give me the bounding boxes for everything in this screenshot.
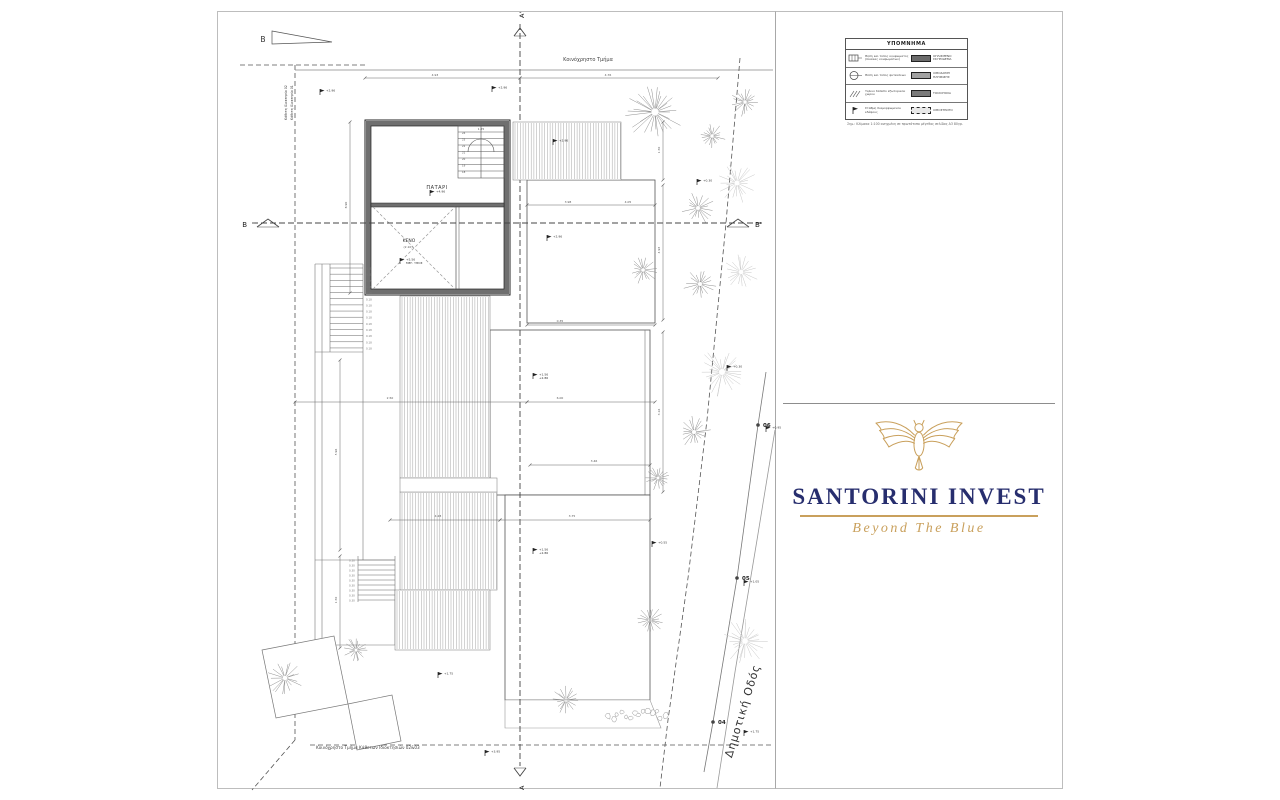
drawing-sheet: B — [0, 0, 1280, 800]
svg-text:4.05: 4.05 — [625, 200, 632, 204]
svg-text:+2.96: +2.96 — [559, 139, 568, 143]
svg-text:04: 04 — [718, 720, 726, 726]
svg-text:(2.10): (2.10) — [403, 245, 412, 249]
svg-text:0.30: 0.30 — [349, 569, 355, 573]
svg-text:+0.30: +0.30 — [733, 365, 742, 369]
svg-text:05: 05 — [742, 576, 750, 582]
vertical-property-01-label: Κάθετη Ιδιοκτησία 01 — [290, 85, 294, 120]
svg-text:+1.75: +1.75 — [444, 672, 453, 676]
legend-symbol-label: Στάθμη διαμορφωμένου εδάφους — [865, 107, 909, 114]
svg-text:1.50: 1.50 — [334, 597, 338, 604]
legend-box: ΥΠΟΜΝΗΜΑ Θέση και τύπος κουφώματος (πίνα… — [845, 38, 968, 120]
site-plan: B — [0, 0, 1280, 800]
svg-text:8.90: 8.90 — [344, 202, 348, 209]
svg-text:0.18: 0.18 — [366, 297, 372, 301]
north-arrow: B — [260, 31, 332, 44]
svg-text:06: 06 — [763, 423, 771, 429]
legend-symbol-label: Θέση και τύπος κουφώματος (πίνακας κουφω… — [865, 55, 909, 62]
svg-text:0.30: 0.30 — [349, 574, 355, 578]
svg-text:+0.30: +0.30 — [703, 179, 712, 183]
svg-text:5.96: 5.96 — [334, 449, 338, 456]
legend-swatch — [911, 90, 931, 97]
svg-text:0.18: 0.18 — [366, 267, 372, 271]
legend-symbol-label: Θέση και τύπος φυτεύσεων — [865, 74, 909, 77]
legend-row: Θέση και τύπος φυτεύσεωνΛΙΘΟΔΟΜΗ ΠΛΗΡΩΣΗ… — [846, 68, 967, 86]
svg-text:+1.75: +1.75 — [750, 730, 759, 734]
window-symbol-icon — [848, 53, 865, 64]
svg-text:0.18: 0.18 — [366, 285, 372, 289]
svg-text:0.18: 0.18 — [366, 328, 372, 332]
svg-text:4.76: 4.76 — [605, 73, 612, 77]
interior-wall — [371, 203, 504, 207]
room-upper — [527, 180, 655, 323]
svg-text:0.18: 0.18 — [366, 273, 372, 277]
company-name: SANTORINI INVEST — [783, 484, 1055, 510]
main-building: ΠΑΤΑΡΙ ΚΕΝΟ — [365, 120, 510, 295]
svg-text:0.18: 0.18 — [366, 316, 372, 320]
legend-title: ΥΠΟΜΝΗΜΑ — [846, 39, 967, 50]
svg-text:0.30: 0.30 — [349, 579, 355, 583]
svg-text:3.16: 3.16 — [657, 409, 661, 416]
svg-text:1.25: 1.25 — [478, 127, 485, 131]
svg-text:+2.96: +2.96 — [553, 235, 562, 239]
legend-swatch-label: ΟΠΛΙΣΜΕΝΟ ΣΚΥΡΟΔΕΜΑ — [933, 55, 965, 62]
legend-swatch-label: ΛΙΘΟΔΟΜΗ ΠΛΗΡΩΣΗΣ — [933, 72, 965, 79]
svg-text:0.30: 0.30 — [349, 599, 355, 603]
svg-text:+2.96: +2.96 — [326, 89, 335, 93]
tilted-terrace-1 — [262, 636, 348, 718]
owl-icon — [871, 414, 967, 478]
legend-symbol-label: Ξύλινο δάπεδο εξωτερικού χώρου — [865, 90, 909, 97]
svg-text:0.30: 0.30 — [349, 559, 355, 563]
svg-text:+3.95: +3.95 — [491, 750, 500, 754]
svg-text:+0.55: +0.55 — [658, 541, 667, 545]
svg-text:20: 20 — [462, 157, 466, 161]
svg-text:0.35: 0.35 — [557, 319, 564, 323]
svg-text:3.98: 3.98 — [565, 200, 572, 204]
section-a-prime-label: A' — [518, 12, 526, 18]
svg-text:0.30: 0.30 — [349, 589, 355, 593]
section-b-prime-label: B' — [755, 221, 762, 229]
svg-text:0.18: 0.18 — [366, 346, 372, 350]
svg-text:22: 22 — [462, 144, 466, 148]
svg-text:0.18: 0.18 — [366, 279, 372, 283]
svg-text:1.50: 1.50 — [657, 147, 661, 154]
svg-text:0.18: 0.18 — [366, 303, 372, 307]
svg-text:24: 24 — [462, 131, 466, 135]
svg-text:+0.95: +0.95 — [772, 426, 781, 430]
svg-text:+1.05: +1.05 — [750, 580, 759, 584]
hatch-symbol-icon — [848, 88, 865, 99]
circle-symbol-icon — [848, 70, 865, 81]
svg-text:4.93: 4.93 — [432, 73, 439, 77]
section-a-label: A — [518, 785, 526, 790]
svg-text:0.18: 0.18 — [366, 334, 372, 338]
tilted-terrace-2 — [348, 695, 401, 750]
svg-text:0.18: 0.18 — [366, 322, 372, 326]
logo-divider — [800, 515, 1038, 517]
legend-swatch — [911, 72, 931, 79]
section-b-label: B — [242, 221, 247, 229]
legend-swatch — [911, 107, 931, 114]
north-arrow-label: B — [260, 35, 265, 44]
common-bottom-label: Κοινόχρηστο Τμήμα Κάθετων Ιδιοκτησιών 02… — [316, 745, 420, 750]
svg-text:4.93: 4.93 — [657, 247, 661, 254]
vertical-property-02-label: Κάθετη Ιδιοκτησία 02 — [284, 85, 288, 120]
legend-swatch-label: ΛΙΘΟΣΤΡΩΤΟ — [933, 109, 965, 112]
company-tagline: Beyond The Blue — [783, 521, 1055, 537]
svg-text:23: 23 — [462, 138, 466, 142]
svg-text:+2.86: +2.86 — [539, 551, 548, 555]
svg-text:0.18: 0.18 — [366, 310, 372, 314]
svg-text:4.28: 4.28 — [435, 514, 442, 518]
company-logo: SANTORINI INVEST Beyond The Blue — [783, 403, 1055, 537]
svg-text:6.00: 6.00 — [557, 396, 564, 400]
room-middle — [490, 330, 650, 495]
svg-text:+2.86: +2.86 — [539, 376, 548, 380]
svg-text:0.30: 0.30 — [349, 584, 355, 588]
svg-text:0.18: 0.18 — [366, 291, 372, 295]
legend-row: Στάθμη διαμορφωμένου εδάφουςΛΙΘΟΣΤΡΩΤΟ — [846, 103, 967, 120]
room-lower — [505, 495, 650, 700]
legend-row: Θέση και τύπος κουφώματος (πίνακας κουφω… — [846, 50, 967, 68]
svg-text:0.30: 0.30 — [349, 564, 355, 568]
legend-swatch — [911, 55, 931, 62]
svg-text:0.30: 0.30 — [349, 594, 355, 598]
svg-text:21: 21 — [462, 151, 466, 155]
svg-text:ΜΕΓ. ΥΨΟΣ: ΜΕΓ. ΥΨΟΣ — [406, 261, 423, 265]
common-top-label: Κοινόχρηστο Τμήμα — [563, 56, 614, 63]
legend-note: Σημ.: Κλίμακα 1:100 ανηγμένη σε πρωτότυπ… — [840, 122, 970, 126]
legend-swatch-label: ΤΟΙΧΟΠΟΙΙΑ — [933, 92, 965, 95]
svg-text:+2.96: +2.96 — [498, 86, 507, 90]
void-label: ΚΕΝΟ — [403, 238, 416, 244]
svg-text:+4.96: +4.96 — [436, 190, 445, 194]
flag-symbol-icon — [848, 105, 865, 116]
svg-text:2.50: 2.50 — [387, 396, 394, 400]
svg-text:19: 19 — [462, 164, 466, 168]
svg-text:0.18: 0.18 — [366, 340, 372, 344]
legend-row: Ξύλινο δάπεδο εξωτερικού χώρουΤΟΙΧΟΠΟΙΙΑ — [846, 85, 967, 103]
left-stairs — [315, 264, 395, 645]
svg-text:3.75: 3.75 — [569, 514, 576, 518]
svg-text:18: 18 — [462, 170, 466, 174]
svg-text:3.46: 3.46 — [591, 459, 598, 463]
